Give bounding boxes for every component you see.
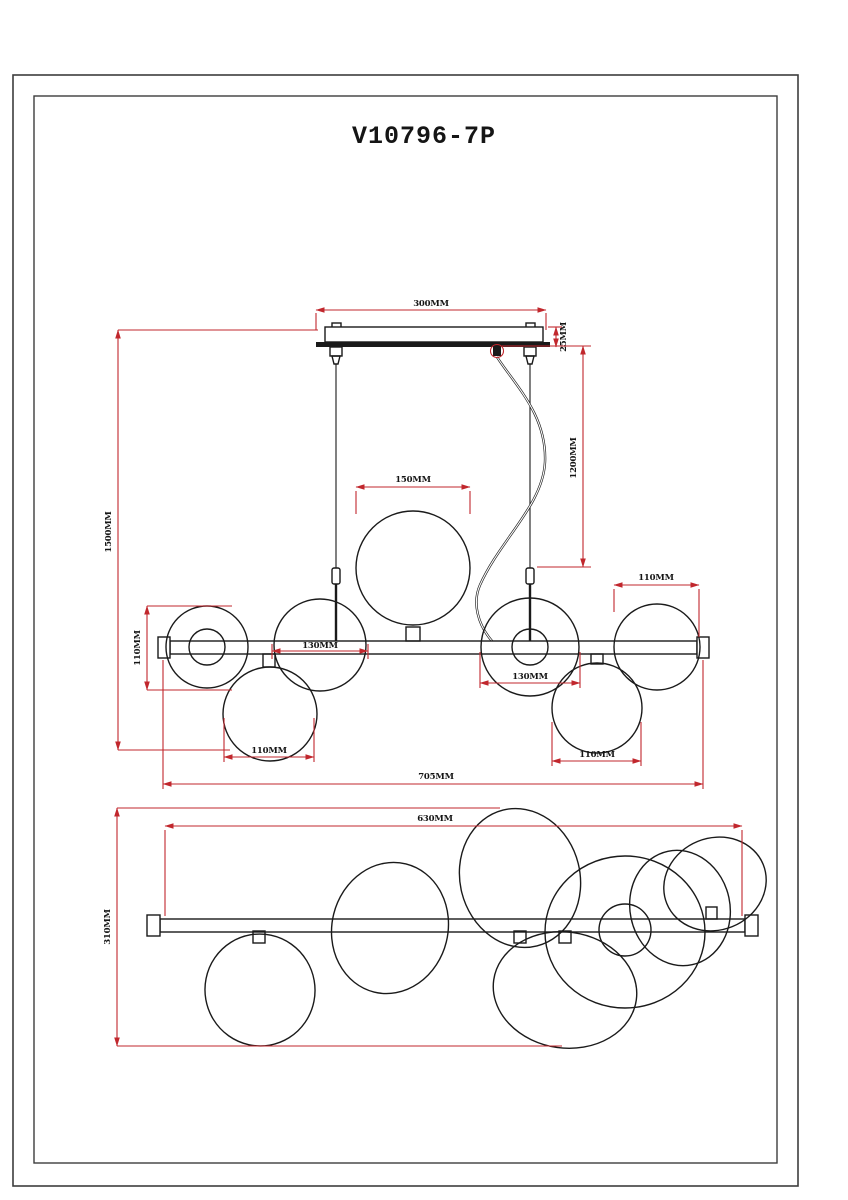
dim-frame-length-label: 630MM: [417, 814, 453, 824]
dim-center-globe: 150MM: [356, 475, 470, 514]
right-hanger-grip: [526, 356, 534, 364]
dim-frame-length: 630MM: [165, 814, 742, 916]
dim-canopy-thickness: 25MM: [548, 321, 569, 352]
plan-globe-far-right: [650, 822, 781, 946]
dim-lower-left-globe-label: 110MM: [251, 746, 287, 756]
dim-left-globe-label: 110MM: [133, 629, 143, 665]
bottom-view: 630MM 310MM: [103, 796, 780, 1058]
cable-gland: [493, 344, 501, 356]
drawing-title: V10796-7P: [352, 122, 496, 151]
dim-overall-depth-label: 310MM: [103, 908, 113, 944]
plan-globe-center-socket: [599, 904, 651, 956]
dim-center-globe-label: 150MM: [395, 475, 431, 485]
dim-overall-length-label: 705MM: [418, 772, 454, 782]
right-wire-connector: [526, 568, 534, 584]
lower-left-globe-neck: [263, 654, 275, 667]
dim-lower-left-globe: 110MM: [224, 718, 314, 762]
dim-overall-depth: 310MM: [103, 808, 562, 1046]
plan-globe-lower-left: [196, 925, 324, 1054]
dim-left-spacing-label: 130MM: [302, 641, 338, 651]
canopy-body: [325, 327, 543, 342]
front-view: 300MM 25MM 1500MM 1200MM 150MM: [104, 299, 709, 789]
left-hanger-fitting: [330, 347, 342, 356]
dim-canopy-width-label: 300MM: [413, 299, 449, 309]
dim-right-spacing: 130MM: [480, 652, 580, 688]
plan-fitting-2: [514, 931, 526, 943]
dim-cord-length: 1200MM: [502, 346, 591, 567]
dim-lower-right-globe-label: 110MM: [579, 750, 615, 760]
dim-canopy-width: 300MM: [316, 299, 546, 330]
plan-globe-upper-right: [619, 841, 741, 975]
left-wire-connector: [332, 568, 340, 584]
dim-right-spacing-label: 130MM: [512, 672, 548, 682]
plan-fitting-4: [706, 907, 717, 919]
technical-drawing: V10796-7P: [0, 0, 848, 1200]
dim-canopy-thickness-label: 25MM: [559, 321, 569, 352]
dim-overall-height-label: 1500MM: [104, 511, 114, 553]
globe-lower-right: [552, 663, 642, 753]
dim-overall-length: 705MM: [163, 660, 703, 789]
plan-bar-left-cap: [147, 915, 160, 936]
plan-globe-top: [445, 796, 595, 961]
right-hanger-fitting: [524, 347, 536, 356]
plan-fitting-1: [253, 931, 265, 943]
frame-bar-left-cap: [158, 637, 170, 658]
plan-frame-bar: [160, 919, 745, 932]
drawing-sheet: V10796-7P: [0, 0, 848, 1200]
plan-globe-left: [318, 850, 462, 1006]
dim-right-globe-label: 110MM: [638, 573, 674, 583]
dim-right-globe: 110MM: [614, 573, 699, 637]
dim-cord-length-label: 1200MM: [569, 437, 579, 479]
center-globe-neck: [406, 627, 420, 641]
left-hanger-grip: [332, 356, 340, 364]
dim-lower-right-globe: 110MM: [552, 722, 641, 766]
dim-overall-height: 1500MM: [104, 330, 318, 750]
frame-bar: [170, 641, 697, 654]
globe-center-large: [356, 511, 470, 625]
